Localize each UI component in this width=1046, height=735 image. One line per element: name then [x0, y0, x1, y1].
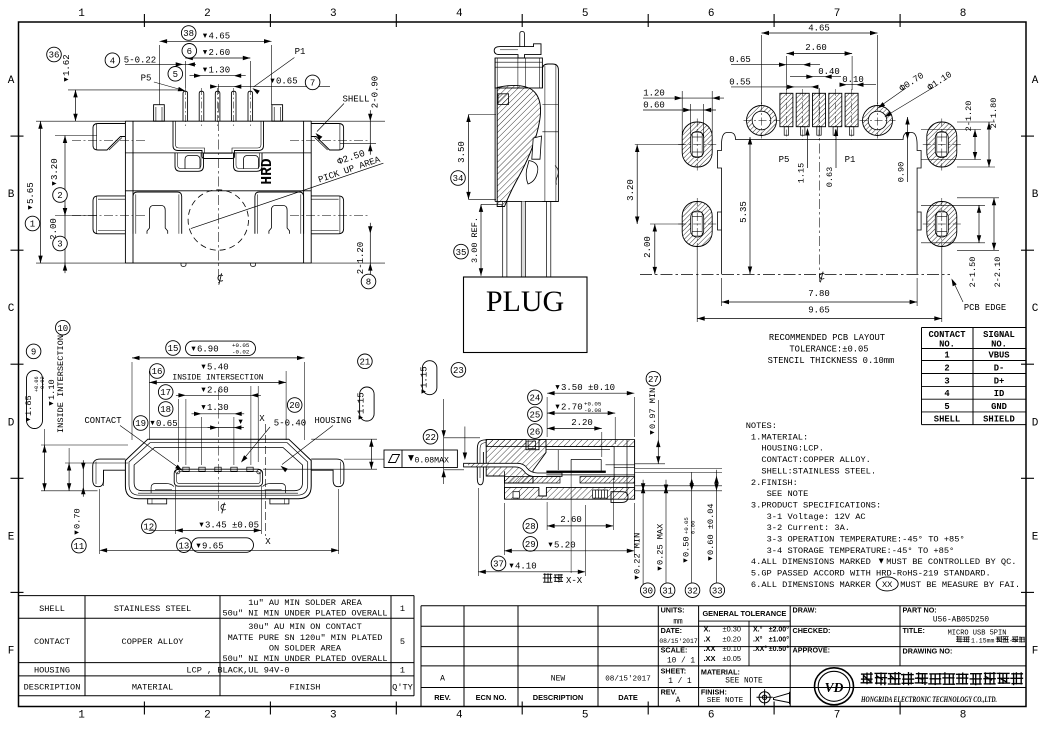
svg-text:B: B [8, 189, 15, 201]
svg-text:TITLE:: TITLE: [903, 626, 925, 635]
svg-text:4.10: 4.10 [515, 562, 537, 572]
svg-text:COPPER ALLOY: COPPER ALLOY [122, 637, 184, 647]
svg-text:.XX: .XX [704, 654, 716, 663]
svg-text:REV.: REV. [661, 688, 677, 697]
svg-text:X: X [265, 537, 271, 547]
svg-text:SEE NOTE: SEE NOTE [767, 489, 809, 499]
svg-text:10 / 1: 10 / 1 [667, 658, 695, 666]
svg-text:±1.00°: ±1.00° [769, 635, 789, 643]
svg-text:3: 3 [57, 240, 62, 250]
svg-text:5: 5 [582, 710, 589, 722]
svg-text:1: 1 [78, 8, 85, 20]
svg-text:10: 10 [57, 324, 68, 334]
svg-text:PCB EDGE: PCB EDGE [964, 303, 1006, 313]
svg-text:P5: P5 [141, 74, 152, 84]
svg-text:7.80: 7.80 [808, 289, 830, 299]
svg-text:CHECKED:: CHECKED: [793, 626, 831, 635]
svg-text:3-2 Current: 3A.: 3-2 Current: 3A. [767, 523, 850, 533]
svg-text:3-4 STORAGE TEMPERATURE:-45° T: 3-4 STORAGE TEMPERATURE:-45° TO +85° [767, 546, 955, 556]
svg-text:-0.02: -0.02 [40, 376, 46, 392]
svg-text:5.GP PASSED ACCORD WITH HRD-Ro: 5.GP PASSED ACCORD WITH HRD-RoHS-219 STA… [751, 569, 991, 579]
svg-text:3-3 OPERATION TEMPERATURE:-45°: 3-3 OPERATION TEMPERATURE:-45° TO +85° [767, 535, 965, 545]
svg-text:DESCRIPTION: DESCRIPTION [533, 693, 584, 702]
svg-text:2: 2 [57, 191, 62, 201]
svg-text:31: 31 [662, 586, 673, 596]
svg-text:DESCRIPTION: DESCRIPTION [24, 683, 81, 693]
svg-text:37: 37 [493, 560, 504, 570]
svg-text:NO.: NO. [991, 340, 1007, 350]
svg-text:E: E [1032, 531, 1039, 543]
svg-text:PLUG: PLUG [486, 285, 564, 318]
svg-text:1.30: 1.30 [209, 66, 231, 76]
svg-text:VBUS: VBUS [988, 351, 1009, 361]
svg-text:6: 6 [187, 47, 192, 57]
svg-text:5: 5 [582, 8, 589, 20]
svg-text:NEW: NEW [551, 675, 566, 684]
svg-text:0.70: 0.70 [73, 508, 83, 529]
svg-text:16: 16 [152, 367, 163, 377]
svg-text:2.60: 2.60 [209, 48, 231, 58]
svg-text:P1: P1 [845, 155, 856, 165]
svg-text:2-1.80: 2-1.80 [989, 98, 999, 129]
svg-text:11: 11 [73, 542, 84, 552]
svg-text:9.65: 9.65 [808, 306, 830, 316]
svg-text:ON SOLDER AREA: ON SOLDER AREA [269, 644, 342, 654]
svg-text:1 / 1: 1 / 1 [668, 678, 692, 686]
svg-text:3: 3 [330, 710, 337, 722]
svg-text:1.15: 1.15 [797, 163, 807, 183]
svg-text:2-0.90: 2-0.90 [371, 76, 381, 108]
svg-text:2.FINISH:: 2.FINISH: [751, 478, 798, 488]
svg-text:X.°: X.° [753, 626, 763, 634]
svg-text:2.60: 2.60 [805, 43, 827, 53]
svg-text:30: 30 [642, 586, 653, 596]
svg-text:4: 4 [456, 710, 463, 722]
svg-text:17: 17 [160, 388, 171, 398]
svg-text:.X°: .X° [753, 635, 763, 643]
svg-text:A: A [8, 75, 15, 87]
svg-text:3.45 ±0.05: 3.45 ±0.05 [205, 521, 259, 531]
svg-text:MATERIAL:: MATERIAL: [701, 668, 740, 677]
svg-text:HOUSING: HOUSING [315, 416, 352, 426]
svg-text:1: 1 [944, 351, 949, 361]
svg-text:A: A [440, 675, 445, 684]
svg-text:SCALE:: SCALE: [661, 646, 688, 655]
svg-text:2-1.20: 2-1.20 [356, 242, 366, 274]
svg-text:5-0.22: 5-0.22 [124, 56, 156, 66]
svg-text:FINISH:: FINISH: [701, 688, 727, 697]
svg-text:U56-AB05D250: U56-AB05D250 [933, 617, 989, 625]
svg-text:E: E [8, 531, 15, 543]
svg-text:7: 7 [834, 8, 841, 20]
svg-text:VD: VD [825, 680, 844, 695]
svg-text:3: 3 [330, 8, 337, 20]
svg-text:MUST BE MEASURE BY FAI.: MUST BE MEASURE BY FAI. [900, 580, 1020, 590]
svg-text:UNITS:: UNITS: [661, 606, 685, 615]
svg-text:DRAWING NO:: DRAWING NO: [903, 647, 953, 656]
svg-text:X.: X. [704, 625, 711, 634]
svg-text:0.10: 0.10 [842, 75, 864, 85]
svg-text:SHIELD: SHIELD [983, 415, 1015, 425]
svg-text:B: B [1032, 189, 1039, 201]
svg-text:33: 33 [712, 586, 723, 596]
svg-text:22: 22 [425, 433, 436, 443]
svg-text:FINISH: FINISH [290, 683, 321, 693]
svg-text:36: 36 [49, 51, 60, 61]
svg-text:±0.30: ±0.30 [723, 625, 741, 634]
svg-text:0.90: 0.90 [897, 162, 907, 182]
svg-text:2: 2 [944, 364, 949, 374]
svg-text:5-0.40: 5-0.40 [274, 419, 306, 429]
svg-text:5.35: 5.35 [739, 201, 749, 223]
svg-text:±0.20: ±0.20 [723, 634, 741, 643]
svg-text:MATTE PURE SN 120u" MIN PLATED: MATTE PURE SN 120u" MIN PLATED [228, 633, 383, 643]
svg-text:±2.00°: ±2.00° [769, 626, 789, 634]
svg-text:±0.50°: ±0.50° [769, 645, 789, 653]
svg-text:D+: D+ [994, 376, 1005, 386]
svg-text:6.90: 6.90 [197, 345, 219, 355]
svg-text:6: 6 [708, 710, 715, 722]
svg-text:24: 24 [529, 394, 540, 404]
svg-text:0.50: 0.50 [681, 536, 691, 557]
svg-text:20: 20 [289, 401, 300, 411]
svg-text:STENCIL THICKNESS 0.10mm: STENCIL THICKNESS 0.10mm [768, 356, 895, 366]
svg-text:APPROVE:: APPROVE: [793, 646, 831, 655]
svg-text:P5: P5 [779, 155, 790, 165]
svg-text:5: 5 [400, 637, 405, 647]
svg-text:2.60: 2.60 [207, 386, 229, 396]
svg-text:GENERAL TOLERANCE: GENERAL TOLERANCE [702, 609, 786, 618]
svg-text:HOUSING: HOUSING [34, 666, 70, 676]
svg-text:±0.05: ±0.05 [723, 654, 741, 663]
svg-text:LCP , BLACK,UL 94V-0: LCP , BLACK,UL 94V-0 [186, 666, 289, 676]
svg-text:X-X: X-X [566, 576, 583, 586]
svg-text:ID: ID [994, 389, 1005, 399]
svg-text:1.15: 1.15 [357, 392, 367, 414]
svg-text:3.20: 3.20 [50, 158, 60, 180]
svg-text:1: 1 [400, 666, 405, 676]
svg-text:SHEET:: SHEET: [661, 667, 687, 676]
svg-text:8: 8 [366, 278, 371, 288]
svg-text:F: F [1032, 646, 1039, 658]
svg-text:0.25 MAX: 0.25 MAX [656, 524, 666, 565]
svg-text:NOTES:: NOTES: [746, 421, 777, 431]
svg-text:HRD: HRD [260, 158, 276, 184]
svg-text:A: A [676, 697, 681, 705]
svg-text:19: 19 [135, 419, 146, 429]
svg-text:15: 15 [168, 344, 179, 354]
svg-text:SEE NOTE: SEE NOTE [707, 697, 744, 705]
svg-text:NO.: NO. [939, 340, 955, 350]
svg-text:1: 1 [78, 710, 85, 722]
svg-text:SEE NOTE: SEE NOTE [725, 678, 763, 686]
svg-text:SHELL: SHELL [39, 604, 65, 614]
svg-text:1.15: 1.15 [419, 366, 429, 388]
svg-text:TOLERANCE:±0.05: TOLERANCE:±0.05 [789, 345, 868, 355]
svg-text:D: D [8, 417, 15, 429]
svg-text:CONTACT: CONTACT [85, 416, 122, 426]
svg-text:CONTACT:COPPER ALLOY.: CONTACT:COPPER ALLOY. [761, 455, 870, 465]
svg-text:DATE: DATE [618, 693, 638, 702]
svg-text:6.ALL DIMENSIONS MARKER: 6.ALL DIMENSIONS MARKER [751, 580, 871, 590]
svg-text:5.20: 5.20 [554, 541, 576, 551]
svg-text:3.20: 3.20 [626, 179, 636, 201]
svg-text:32: 32 [687, 586, 698, 596]
svg-text:1.15mm: 1.15mm [971, 638, 995, 645]
svg-text:XX: XX [882, 580, 893, 590]
svg-text:3: 3 [944, 376, 949, 386]
svg-text:CONTACT: CONTACT [929, 330, 967, 340]
svg-text:X: X [259, 414, 265, 424]
svg-text:7: 7 [310, 79, 315, 89]
svg-text:.XX°: .XX° [753, 645, 767, 653]
svg-text:HOUSING:LCP.: HOUSING:LCP. [761, 444, 824, 454]
svg-text:.XX: .XX [704, 644, 716, 653]
svg-text:1: 1 [400, 604, 405, 614]
svg-text:C: C [8, 303, 15, 315]
svg-text:SIGNAL: SIGNAL [983, 330, 1015, 340]
svg-text:50u" NI MIN UNDER PLATED OVERA: 50u" NI MIN UNDER PLATED OVERALL [222, 609, 387, 619]
svg-text:0.40: 0.40 [818, 67, 840, 77]
svg-text:38: 38 [183, 29, 194, 39]
svg-text:4.65: 4.65 [209, 32, 231, 42]
svg-text:29: 29 [525, 540, 536, 550]
svg-text:3-1 Voltage: 12V AC: 3-1 Voltage: 12V AC [767, 512, 866, 522]
svg-text:1.85: 1.85 [24, 395, 34, 416]
svg-text:35: 35 [456, 248, 467, 258]
svg-text:12: 12 [143, 523, 154, 533]
svg-text:MUST BE CONTROLLED BY QC.: MUST BE CONTROLLED BY QC. [886, 557, 1016, 567]
svg-text:SHELL: SHELL [934, 415, 960, 425]
svg-text:HONGRIDA ELECTRONIC TECHNOLOGY: HONGRIDA ELECTRONIC TECHNOLOGY CO.,LTD. [860, 695, 997, 704]
svg-text:8: 8 [960, 710, 967, 722]
svg-text:21: 21 [359, 358, 370, 368]
svg-text:ECN NO.: ECN NO. [476, 693, 507, 702]
svg-text:0.63: 0.63 [825, 167, 835, 187]
svg-text:1.20: 1.20 [643, 89, 665, 99]
svg-text:50u" NI MIN UNDER PLATED OVERA: 50u" NI MIN UNDER PLATED OVERALL [222, 654, 387, 664]
svg-text:4.ALL DIMENSIONS MARKED: 4.ALL DIMENSIONS MARKED [751, 557, 871, 567]
svg-text:2: 2 [204, 710, 211, 722]
svg-text:26: 26 [529, 427, 540, 437]
svg-text:1.10: 1.10 [47, 379, 57, 400]
svg-text:1: 1 [30, 220, 35, 230]
svg-text:2.70: 2.70 [561, 403, 583, 413]
svg-text:2-1.20: 2-1.20 [964, 101, 974, 132]
svg-text:-0.08: -0.08 [584, 407, 602, 414]
svg-text:18: 18 [160, 405, 171, 415]
svg-text:3.PRODUCT SPECIFICATIONS:: 3.PRODUCT SPECIFICATIONS: [751, 500, 881, 510]
svg-text:27: 27 [648, 375, 659, 385]
svg-text:9: 9 [31, 348, 36, 358]
svg-text:0.60: 0.60 [643, 101, 665, 111]
svg-text:MICRO USB 5PIN: MICRO USB 5PIN [948, 630, 1007, 638]
svg-text:SHELL:STAINLESS STEEL.: SHELL:STAINLESS STEEL. [761, 466, 876, 476]
svg-text:30u" AU MIN ON CONTACT: 30u" AU MIN ON CONTACT [248, 622, 361, 632]
svg-text:0.65: 0.65 [729, 55, 751, 65]
svg-text:2.20: 2.20 [571, 418, 593, 428]
svg-text:25: 25 [529, 410, 540, 420]
svg-text:34: 34 [453, 174, 464, 184]
svg-text:2: 2 [204, 8, 211, 20]
svg-text:2.60: 2.60 [560, 515, 582, 525]
svg-text:1.MATERIAL:: 1.MATERIAL: [751, 432, 808, 442]
svg-text:1.30: 1.30 [207, 403, 229, 413]
svg-text:SHELL: SHELL [342, 95, 369, 105]
svg-text:5: 5 [173, 70, 178, 80]
svg-text:0.65: 0.65 [156, 419, 178, 429]
svg-text:-: - [1009, 638, 1013, 645]
svg-text:C: C [1032, 303, 1039, 315]
svg-text:13: 13 [178, 541, 189, 551]
svg-text:0.65: 0.65 [276, 77, 298, 87]
svg-text:2-1.50: 2-1.50 [968, 257, 978, 288]
svg-text:5: 5 [944, 402, 949, 412]
svg-text:INSIDE INTERSECTION: INSIDE INTERSECTION [56, 335, 66, 433]
svg-text:2-2.10: 2-2.10 [993, 257, 1003, 288]
svg-text:MATERIAL: MATERIAL [132, 683, 173, 693]
svg-text:3.50: 3.50 [457, 141, 467, 163]
svg-text:3.00 REF.: 3.00 REF. [470, 217, 480, 263]
svg-text:1.62: 1.62 [62, 54, 72, 76]
svg-text:.X: .X [704, 634, 711, 643]
svg-text:3.50 ±0.10: 3.50 ±0.10 [561, 383, 615, 393]
svg-text:DRAW:: DRAW: [793, 606, 817, 615]
svg-text:1u" AU MIN SOLDER AREA: 1u" AU MIN SOLDER AREA [248, 598, 362, 608]
svg-text:D: D [1032, 417, 1039, 429]
svg-text:4: 4 [944, 389, 950, 399]
svg-text:F: F [8, 646, 15, 658]
svg-text:2.00: 2.00 [643, 236, 653, 258]
svg-text:PART NO:: PART NO: [903, 606, 937, 615]
svg-text:0.60 ±0.04: 0.60 ±0.04 [706, 503, 716, 555]
svg-text:GND: GND [991, 402, 1007, 412]
svg-text:CONTACT: CONTACT [34, 637, 70, 647]
svg-text:7: 7 [834, 710, 841, 722]
svg-text:28: 28 [525, 522, 536, 532]
svg-text:0.55: 0.55 [729, 77, 751, 87]
svg-text:08/15'2017: 08/15'2017 [659, 638, 698, 645]
svg-text:4: 4 [456, 8, 463, 20]
svg-text:±0.10: ±0.10 [723, 644, 741, 653]
svg-text:DATE:: DATE: [661, 626, 682, 635]
svg-text:23: 23 [453, 366, 464, 376]
svg-text:D-: D- [994, 364, 1005, 374]
svg-text:STAINLESS STEEL: STAINLESS STEEL [114, 604, 191, 614]
svg-text:8: 8 [960, 8, 967, 20]
svg-text:6: 6 [708, 8, 715, 20]
svg-text:A: A [1032, 75, 1039, 87]
svg-text:Q'TY: Q'TY [392, 683, 413, 693]
svg-text:P1: P1 [295, 47, 306, 57]
svg-text:5.65: 5.65 [26, 182, 36, 204]
svg-text:0.00: 0.00 [690, 520, 697, 534]
svg-text:RECOMMENDED PCB LAYOUT: RECOMMENDED PCB LAYOUT [769, 333, 885, 343]
svg-text:-0.02: -0.02 [232, 349, 250, 356]
svg-text:INSIDE INTERSECTION: INSIDE INTERSECTION [172, 374, 263, 383]
svg-text:0.97 MIN: 0.97 MIN [648, 388, 658, 429]
svg-text:4: 4 [110, 56, 115, 66]
svg-text:REV.: REV. [434, 693, 451, 702]
svg-text:4.65: 4.65 [808, 24, 830, 34]
svg-text:5.40: 5.40 [207, 363, 229, 373]
svg-text:08/15'2017: 08/15'2017 [605, 676, 651, 684]
